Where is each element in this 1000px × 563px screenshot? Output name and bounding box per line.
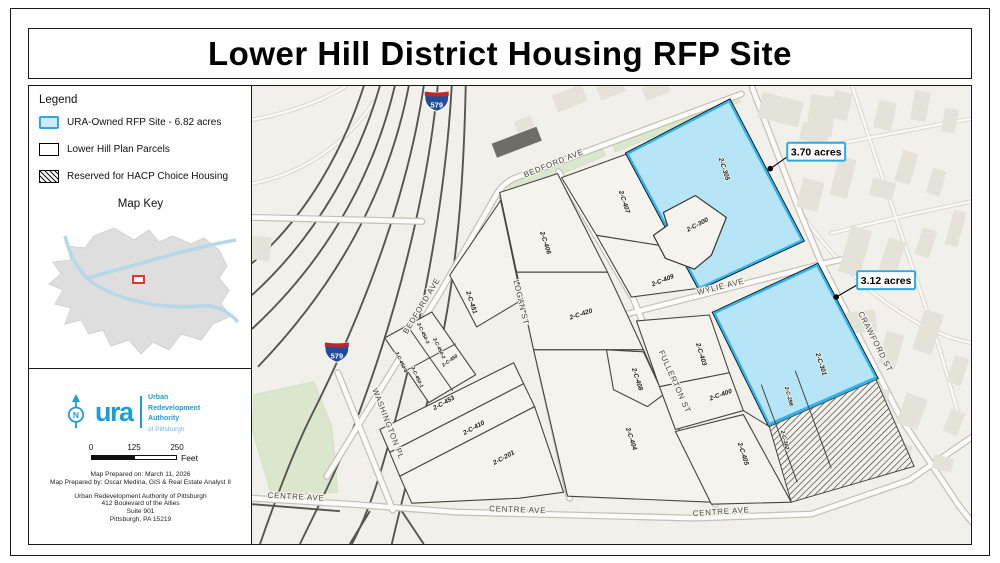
ura-logo: N ura Urban Redevelopment Authority of P… <box>67 391 200 433</box>
side-panel: Legend URA-Owned RFP Site - 6.82 acres L… <box>28 85 253 545</box>
legend-heading: Legend <box>39 94 77 106</box>
hatch-swatch <box>39 170 59 183</box>
page-title: Lower Hill District Housing RFP Site <box>208 35 792 73</box>
map-document-page: Lower Hill District Housing RFP Site Leg… <box>0 0 1000 563</box>
legend-item-label: Reserved for HACP Choice Housing <box>67 171 228 182</box>
credits-panel: N ura Urban Redevelopment Authority of P… <box>28 368 253 545</box>
title-bar: Lower Hill District Housing RFP Site <box>28 28 972 79</box>
shield-number: 579 <box>331 351 343 360</box>
credit-line: Map Prepared by: Oscar Medina, GIS & Rea… <box>29 479 252 487</box>
callout-anchor-dot <box>833 294 839 300</box>
callout-text: 3.12 acres <box>861 276 912 287</box>
legend-item-label: URA-Owned RFP Site - 6.82 acres <box>67 117 221 128</box>
credits-text: Map Prepared on: March 11, 2026 Map Prep… <box>29 471 252 524</box>
scale-tick: 125 <box>127 443 140 452</box>
org-line: Urban <box>148 394 168 401</box>
scale-bar: 0 125 250 Feet <box>29 443 252 469</box>
org-line: Redevelopment <box>148 405 200 412</box>
org-subline: of Pittsburgh <box>148 426 185 433</box>
address-line: Pittsburgh, PA 15219 <box>29 516 252 524</box>
legend-item-plan-parcels: Lower Hill Plan Parcels <box>39 143 170 156</box>
site-location-marker <box>133 276 144 283</box>
map-frame: BEDFORD AVEBEDFORD AVELOGAN STWYLIE AVEF… <box>251 85 972 545</box>
scale-unit: Feet <box>181 453 198 463</box>
scale-tick: 0 <box>89 443 93 452</box>
svg-text:N: N <box>73 410 79 420</box>
legend-item-hacp-housing: Reserved for HACP Choice Housing <box>39 170 228 183</box>
callout-anchor-dot <box>767 166 773 172</box>
address-line: Urban Redevelopment Authority of Pittsbu… <box>29 493 252 501</box>
map-canvas[interactable]: BEDFORD AVEBEDFORD AVELOGAN STWYLIE AVEF… <box>252 86 971 544</box>
callout-text: 3.70 acres <box>791 148 842 159</box>
org-name: Urban Redevelopment Authority of Pittsbu… <box>148 391 200 433</box>
logo-divider <box>140 396 143 428</box>
address-line: 412 Boulevard of the Allies <box>29 500 252 508</box>
shield-number: 579 <box>430 100 442 109</box>
map-key-locator <box>39 214 242 362</box>
scale-bar-segment <box>91 455 134 460</box>
legend-item-label: Lower Hill Plan Parcels <box>67 144 170 155</box>
plan-parcel-swatch <box>39 143 59 156</box>
ura-wordmark: ura <box>95 399 133 425</box>
scale-tick: 250 <box>170 443 183 452</box>
address-line: Suite 901 <box>29 508 252 516</box>
map-key-heading: Map Key <box>29 198 252 210</box>
legend-panel: Legend URA-Owned RFP Site - 6.82 acres L… <box>28 85 253 369</box>
legend-item-rfp-site: URA-Owned RFP Site - 6.82 acres <box>39 116 221 129</box>
rfp-site-swatch <box>39 116 59 129</box>
org-line: Authority <box>148 415 179 422</box>
scale-bar-segment <box>134 455 177 460</box>
credit-line: Map Prepared on: March 11, 2026 <box>29 471 252 479</box>
north-arrow-icon: N <box>67 393 85 431</box>
